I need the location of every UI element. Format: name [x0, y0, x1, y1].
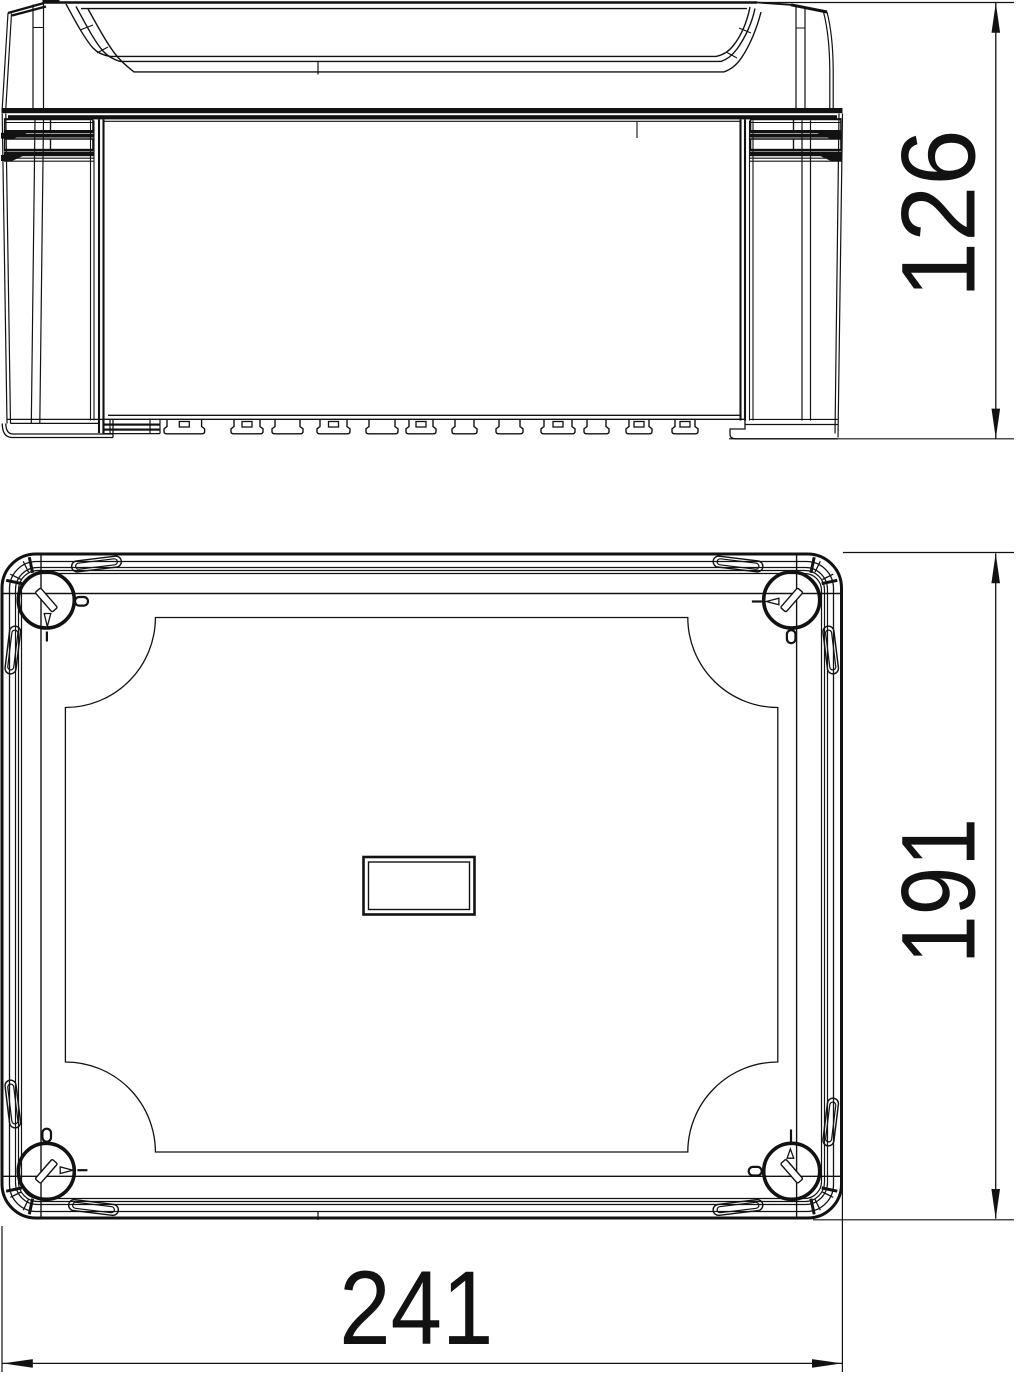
svg-text:241: 241	[339, 1250, 493, 1367]
svg-text:126: 126	[880, 129, 997, 298]
svg-text:191: 191	[881, 818, 998, 964]
